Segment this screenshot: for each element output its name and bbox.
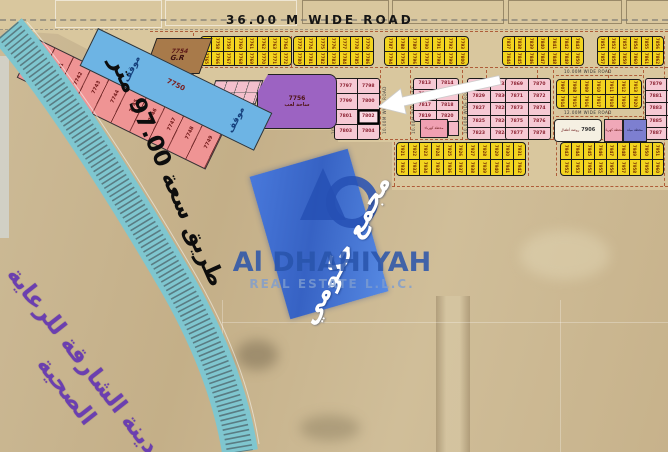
plot-cell: 7919 bbox=[618, 95, 629, 109]
plot-number: 7771 bbox=[272, 53, 277, 64]
plot-cell: 7954 bbox=[584, 160, 594, 176]
plot-cell: 7783 bbox=[328, 52, 338, 66]
plot-cell: 7803 bbox=[335, 125, 357, 139]
plot-cell: 7849 bbox=[561, 52, 572, 66]
pink-plot-row: 78857886 bbox=[646, 116, 668, 127]
sand-light-patch bbox=[520, 230, 610, 280]
plot-number: 7816 bbox=[441, 92, 454, 97]
plot-number: 7874 bbox=[533, 106, 546, 111]
plot-cell: 7924 bbox=[432, 143, 443, 159]
plot-cell: 7825 bbox=[468, 116, 490, 127]
road-name-horizontal: 12.00M WIDE ROAD bbox=[564, 110, 612, 115]
plot-cell: 7802 bbox=[358, 110, 380, 124]
plot-cell: 7861 bbox=[642, 52, 652, 66]
plot-cell: 7845 bbox=[515, 52, 526, 66]
plot-cell: 7769 bbox=[247, 52, 257, 66]
boundary-dash bbox=[556, 142, 557, 176]
yellow-plot-row: 7837783878397840784178427843 bbox=[503, 37, 583, 51]
plot-number: 7784 bbox=[342, 53, 347, 64]
plot-cell: 7797 bbox=[335, 79, 357, 93]
plot-number: 7749 bbox=[203, 135, 214, 150]
plot-number: 7793 bbox=[460, 38, 465, 49]
plot-number: 7760 bbox=[238, 38, 243, 49]
plot-number: 7957 bbox=[621, 162, 626, 173]
plot-number: 7948 bbox=[621, 145, 626, 156]
plot-cell: 7879 bbox=[646, 79, 666, 90]
plot-cell: 7946 bbox=[595, 143, 605, 159]
pink-plot-row: 78737874 bbox=[506, 103, 550, 114]
boundary-dash bbox=[380, 70, 381, 140]
plot-cell: 7875 bbox=[506, 116, 528, 127]
plot-number: 7825 bbox=[472, 119, 485, 124]
plot-number: 7777 bbox=[342, 38, 347, 49]
plot-cell: 7959 bbox=[641, 160, 651, 176]
utility-plot-water: محطة مياه bbox=[623, 119, 647, 142]
yellow-plot-row: 7787778877897790779177927793 bbox=[385, 37, 468, 51]
yellow-plot-strip: 7943794479457946794779487949795079517952… bbox=[560, 142, 664, 176]
plot-number: 7764 bbox=[283, 38, 288, 49]
plot-number: 7921 bbox=[400, 145, 405, 156]
plot-number: 7873 bbox=[510, 106, 523, 111]
plot-number: 7870 bbox=[533, 82, 546, 87]
plot-number: 7854 bbox=[634, 38, 639, 49]
plot-number: 7887 bbox=[649, 131, 662, 136]
plot-cell: 7944 bbox=[572, 143, 582, 159]
plot-number: 7792 bbox=[448, 38, 453, 49]
plot-cell: 7846 bbox=[526, 52, 537, 66]
plot-cell: 7768 bbox=[235, 52, 245, 66]
plot-cell: 7759 bbox=[224, 37, 234, 51]
plot-cell: 7795 bbox=[397, 52, 408, 66]
plot-cell: 7775 bbox=[317, 37, 327, 51]
plot-number: 7766 bbox=[215, 53, 220, 64]
plot-cell: 7794 bbox=[385, 52, 396, 66]
plot-cell: 7801 bbox=[335, 110, 357, 124]
plot-cell: 7948 bbox=[618, 143, 628, 159]
plot-number: 7759 bbox=[226, 38, 231, 49]
plot-number: 7815 bbox=[418, 92, 431, 97]
road-name-horizontal: 10.00M WIDE ROAD bbox=[564, 69, 612, 74]
yellow-plot-strip: 7787778877897790779177927793779477957796… bbox=[384, 36, 469, 66]
yellow-plot-row: 785178527853785478557856 bbox=[598, 37, 663, 51]
plot-cell: 7949 bbox=[630, 143, 640, 159]
plot-cell: 7761 bbox=[247, 37, 257, 51]
plot-cell: 7933 bbox=[409, 160, 420, 176]
plot-cell: 7915 bbox=[569, 95, 580, 109]
plot-number: 7837 bbox=[506, 38, 511, 49]
plot-cell: 7840 bbox=[538, 37, 549, 51]
plot-cell: 7935 bbox=[432, 160, 443, 176]
plot-number: 7938 bbox=[470, 162, 475, 173]
plot-number: 7818 bbox=[441, 103, 454, 108]
plot-number: 7817 bbox=[418, 103, 431, 108]
plot-cell: 7940 bbox=[491, 160, 502, 176]
pink-plot-row: 78797880 bbox=[646, 79, 668, 90]
pink-plot-block: 7869787078717872787378747875787678777878 bbox=[505, 78, 551, 140]
plot-cell: 7927 bbox=[467, 143, 478, 159]
plot-number: 7947 bbox=[609, 145, 614, 156]
plot-cell: 7829 bbox=[468, 91, 490, 102]
plot-cell: 7885 bbox=[646, 116, 666, 127]
plot-cell: 7960 bbox=[653, 160, 663, 176]
plot-number: 7942 bbox=[517, 162, 522, 173]
plot-cell: 7772 bbox=[281, 52, 291, 66]
plot-number: 7776 bbox=[331, 38, 336, 49]
plot-number: 7779 bbox=[365, 38, 370, 49]
plot-number: 7767 bbox=[226, 53, 231, 64]
plot-cell: 7841 bbox=[549, 37, 560, 51]
plot-number: 7952 bbox=[564, 162, 569, 173]
plot-label: ساحة لعب bbox=[284, 102, 309, 108]
plot-number: 7862 bbox=[656, 53, 661, 64]
plot-number: 7768 bbox=[238, 53, 243, 64]
yellow-plot-row: 795279537954795579567957795879597960 bbox=[561, 160, 663, 176]
plot-number: 7823 bbox=[472, 131, 485, 136]
yellow-plot-strip: 7851785278537854785578567857785878597860… bbox=[597, 36, 664, 66]
plot-number: 7741 bbox=[54, 62, 65, 77]
plot-number: 7881 bbox=[649, 94, 662, 99]
plot-number: 7929 bbox=[494, 145, 499, 156]
plot-cell: 7782 bbox=[317, 52, 327, 66]
plot-number: 7919 bbox=[621, 96, 626, 107]
plot-cell: 7784 bbox=[340, 52, 350, 66]
plot-cell: 7956 bbox=[607, 160, 617, 176]
plot-cell: 7914 bbox=[557, 95, 568, 109]
top-road-label: 36.00 M WIDE ROAD bbox=[226, 13, 414, 27]
sand-dark-patch bbox=[236, 340, 278, 370]
plot-cell: 7792 bbox=[445, 37, 456, 51]
plot-cell: 7916 bbox=[581, 95, 592, 109]
plot-7906-nursery: روضة أطفال 7906 bbox=[554, 119, 602, 142]
plot-number: 7798 bbox=[436, 53, 441, 64]
pink-plot-row: 78837884 bbox=[646, 103, 668, 114]
plot-number: 7941 bbox=[505, 162, 510, 173]
plot-number: 7861 bbox=[645, 53, 650, 64]
plot-cell: 7850 bbox=[572, 52, 583, 66]
plot-number: 7859 bbox=[623, 53, 628, 64]
plot-cell: 7843 bbox=[572, 37, 583, 51]
plot-cell: 7931 bbox=[514, 143, 525, 159]
plot-cell: 7922 bbox=[409, 143, 420, 159]
utility-plot-mini bbox=[448, 121, 459, 136]
plot-number: 7913 bbox=[633, 81, 638, 92]
plot-number: 7855 bbox=[645, 38, 650, 49]
plot-number: 7774 bbox=[308, 38, 313, 49]
boundary-dash bbox=[556, 75, 642, 76]
plot-number: 7908 bbox=[572, 81, 577, 92]
plot-number: 7914 bbox=[560, 96, 565, 107]
plot-cell: 7947 bbox=[607, 143, 617, 159]
pink-plot-row: 78177818 bbox=[414, 101, 458, 111]
plot-number: 7758 bbox=[215, 38, 220, 49]
plot-cell: 7778 bbox=[351, 37, 361, 51]
plot-number: 7920 bbox=[633, 96, 638, 107]
plot-cell: 7874 bbox=[529, 103, 551, 114]
plot-number: 7943 bbox=[564, 145, 569, 156]
plot-cell: 7799 bbox=[445, 52, 456, 66]
yellow-plot-strip: 7757775877597760776177627763776477657766… bbox=[200, 36, 292, 66]
plot-number: 7785 bbox=[354, 53, 359, 64]
plot-number: 7780 bbox=[297, 53, 302, 64]
plot-cell: 7780 bbox=[294, 52, 304, 66]
plot-cell: 7781 bbox=[305, 52, 315, 66]
plot-cell: 7857 bbox=[598, 52, 608, 66]
plot-cell: 7804 bbox=[358, 125, 380, 139]
parking-number: 7750 bbox=[165, 77, 186, 93]
plot-cell: 7823 bbox=[468, 128, 490, 139]
plot-number: 7945 bbox=[587, 145, 592, 156]
plot-cell: 7870 bbox=[529, 79, 551, 90]
plot-number: 7829 bbox=[472, 94, 485, 99]
boundary-dash bbox=[394, 142, 395, 186]
plot-cell: 7918 bbox=[606, 95, 617, 109]
plot-number: 7937 bbox=[458, 162, 463, 173]
plot-number: 7839 bbox=[529, 38, 534, 49]
plot-cell: 7815 bbox=[414, 90, 436, 100]
plot-cell: 7856 bbox=[653, 37, 663, 51]
plot-number: 7740 bbox=[35, 53, 46, 68]
pink-plot-row: 78037804 bbox=[335, 125, 379, 139]
yellow-plot-row: 7844784578467847784878497850 bbox=[503, 52, 583, 66]
plot-cell: 7945 bbox=[584, 143, 594, 159]
plot-number: 7910 bbox=[596, 81, 601, 92]
dirt-track bbox=[436, 296, 470, 452]
plot-number: 7772 bbox=[283, 53, 288, 64]
plot-cell: 7887 bbox=[646, 128, 666, 139]
plot-cell: 7936 bbox=[444, 160, 455, 176]
yellow-plot-row: 7914791579167917791879197920 bbox=[557, 95, 641, 109]
plot-cell: 7860 bbox=[631, 52, 641, 66]
plot-number: 7852 bbox=[612, 38, 617, 49]
plot-cell: 7855 bbox=[642, 37, 652, 51]
plot-number: 7877 bbox=[510, 131, 523, 136]
plot-cell: 7873 bbox=[506, 103, 528, 114]
plot-number: 7820 bbox=[441, 114, 454, 119]
plot-cell: 7764 bbox=[281, 37, 291, 51]
plot-cell: 7862 bbox=[653, 52, 663, 66]
plot-number: 7956 bbox=[609, 162, 614, 173]
plot-number: 7949 bbox=[632, 145, 637, 156]
plot-number: 7798 bbox=[362, 84, 375, 89]
plot-number: 7789 bbox=[412, 38, 417, 49]
plot-cell: 7771 bbox=[269, 52, 279, 66]
plot-cell: 7788 bbox=[397, 37, 408, 51]
plot-number: 7924 bbox=[435, 145, 440, 156]
plot-cell: 7818 bbox=[437, 101, 459, 111]
plot-number: 7831 bbox=[472, 82, 485, 87]
yellow-plot-strip: 7907790879097910791179127913791479157916… bbox=[556, 79, 642, 109]
plot-number: 7875 bbox=[510, 119, 523, 124]
plot-cell: 7923 bbox=[420, 143, 431, 159]
parcel-line bbox=[560, 300, 561, 452]
plot-cell: 7837 bbox=[503, 37, 514, 51]
plot-number: 7909 bbox=[584, 81, 589, 92]
plot-cell: 7770 bbox=[258, 52, 268, 66]
plot-cell: 7930 bbox=[503, 143, 514, 159]
plot-number: 7858 bbox=[612, 53, 617, 64]
plot-number: 7959 bbox=[644, 162, 649, 173]
plot-cell: 7760 bbox=[235, 37, 245, 51]
plot-number: 7926 bbox=[458, 145, 463, 156]
plot-cell: 7932 bbox=[397, 160, 408, 176]
plot-cell: 7798 bbox=[358, 79, 380, 93]
plot-cell: 7854 bbox=[631, 37, 641, 51]
plot-number: 7840 bbox=[540, 38, 545, 49]
plot-number: 7775 bbox=[320, 38, 325, 49]
plot-number: 7756 bbox=[289, 95, 306, 102]
plot-number: 7869 bbox=[510, 82, 523, 87]
plot-cell: 7851 bbox=[598, 37, 608, 51]
yellow-plot-row: 785778587859786078617862 bbox=[598, 52, 663, 66]
plot-number: 7797 bbox=[424, 53, 429, 64]
plot-number: 7879 bbox=[649, 82, 662, 87]
yellow-plot-row: 77657766776777687769777077717772 bbox=[201, 52, 291, 66]
utility-plot-small: محطة كهرباء bbox=[420, 119, 448, 138]
plot-cell: 7758 bbox=[212, 37, 222, 51]
plot-number: 7787 bbox=[388, 38, 393, 49]
plot-number: 7838 bbox=[517, 38, 522, 49]
pink-plot-row: 78017802 bbox=[335, 110, 379, 124]
plot-number: 7773 bbox=[297, 38, 302, 49]
plot-number: 7799 bbox=[339, 99, 352, 104]
plot-number: 7885 bbox=[649, 119, 662, 124]
pink-plot-row: 78717872 bbox=[506, 91, 550, 102]
plot-cell: 7787 bbox=[385, 37, 396, 51]
plot-number: 7788 bbox=[400, 38, 405, 49]
plot-number: 7860 bbox=[634, 53, 639, 64]
plot-number: 7845 bbox=[517, 53, 522, 64]
yellow-plot-row: 7773777477757776777777787779 bbox=[294, 37, 373, 51]
plot-number: 7916 bbox=[584, 96, 589, 107]
plot-cell: 7793 bbox=[457, 37, 468, 51]
plot-cell: 7912 bbox=[618, 80, 629, 94]
yellow-plot-strip: 7773777477757776777777787779778077817782… bbox=[293, 36, 374, 66]
plot-cell: 7938 bbox=[467, 160, 478, 176]
plot-number: 7927 bbox=[470, 145, 475, 156]
plot-cell: 7951 bbox=[653, 143, 663, 159]
plot-cell: 7858 bbox=[609, 52, 619, 66]
yellow-plot-row: 794379447945794679477948794979507951 bbox=[561, 143, 663, 159]
plot-cell: 7817 bbox=[414, 101, 436, 111]
watermark-subtitle: REAL ESTATE L.L.C. bbox=[244, 277, 420, 291]
pink-plot-block: 7879788078817882788378847885788678877888 bbox=[645, 78, 668, 140]
plot-cell: 7908 bbox=[569, 80, 580, 94]
plot-cell: 7934 bbox=[420, 160, 431, 176]
boundary-dash bbox=[528, 142, 529, 176]
plot-number: 7950 bbox=[644, 145, 649, 156]
plot-number: 7853 bbox=[623, 38, 628, 49]
plot-number: 7939 bbox=[482, 162, 487, 173]
plot-cell: 7799 bbox=[335, 94, 357, 108]
plot-cell: 7847 bbox=[538, 52, 549, 66]
plot-number: 7848 bbox=[552, 53, 557, 64]
plot-cell: 7813 bbox=[414, 79, 436, 89]
plot-number: 7781 bbox=[308, 53, 313, 64]
plot-cell: 7844 bbox=[503, 52, 514, 66]
plot-cell: 7797 bbox=[421, 52, 432, 66]
plot-number: 7883 bbox=[649, 106, 662, 111]
plot-number: 7928 bbox=[482, 145, 487, 156]
plot-cell: 7881 bbox=[646, 91, 666, 102]
plot-cell: 7852 bbox=[609, 37, 619, 51]
plot-cell: 7907 bbox=[557, 80, 568, 94]
plot-number: 7742 bbox=[72, 71, 83, 86]
plot-number: 7786 bbox=[365, 53, 370, 64]
plot-number: 7936 bbox=[447, 162, 452, 173]
plot-7756-playground: 7756 ساحة لعب bbox=[257, 74, 337, 129]
plot-number: 7871 bbox=[510, 94, 523, 99]
plot-number: 7791 bbox=[436, 38, 441, 49]
plot-label: G.R bbox=[168, 55, 185, 63]
plot-number: 7770 bbox=[261, 53, 266, 64]
plot-number: 7911 bbox=[609, 81, 614, 92]
pink-plot-row: 78697870 bbox=[506, 79, 550, 90]
plot-cell: 7859 bbox=[620, 52, 630, 66]
plot-number: 7915 bbox=[572, 96, 577, 107]
plot-cell: 7777 bbox=[340, 37, 350, 51]
plot-number: 7813 bbox=[418, 81, 431, 86]
pink-plot-row: 78137814 bbox=[414, 79, 458, 89]
plot-number: 7762 bbox=[261, 38, 266, 49]
plot-number: 7912 bbox=[621, 81, 626, 92]
pink-plot-row: 77997800 bbox=[335, 94, 379, 108]
plot-cell: 7827 bbox=[468, 103, 490, 114]
plot-cell: 7876 bbox=[529, 116, 551, 127]
plot-cell: 7869 bbox=[506, 79, 528, 90]
pink-plot-row: 78757876 bbox=[506, 116, 550, 127]
plot-number: 7748 bbox=[184, 126, 195, 141]
plot-number: 7935 bbox=[435, 162, 440, 173]
plot-number: 7847 bbox=[540, 53, 545, 64]
plot-number: 7954 bbox=[587, 162, 592, 173]
plot-cell: 7786 bbox=[363, 52, 373, 66]
plot-cell: 7878 bbox=[529, 128, 551, 139]
plot-number: 7802 bbox=[362, 114, 375, 119]
plot-number: 7917 bbox=[596, 96, 601, 107]
plot-cell: 7955 bbox=[595, 160, 605, 176]
plot-cell: 7800 bbox=[457, 52, 468, 66]
plot-number: 7783 bbox=[331, 53, 336, 64]
plot-number: 7878 bbox=[533, 131, 546, 136]
map-screenshot: 36.00 M WIDE ROAD 10.00M WIDE ROAD10.00M… bbox=[0, 0, 668, 452]
plot-cell: 7814 bbox=[437, 79, 459, 89]
plot-number: 7803 bbox=[339, 129, 352, 134]
plot-number: 7960 bbox=[655, 162, 660, 173]
pink-plot-row: 78157816 bbox=[414, 90, 458, 100]
plot-number: 7800 bbox=[460, 53, 465, 64]
pink-plot-row: 78777878 bbox=[506, 128, 550, 139]
plot-number: 7918 bbox=[609, 96, 614, 107]
plot-cell: 7842 bbox=[561, 37, 572, 51]
plot-number: 7841 bbox=[552, 38, 557, 49]
plot-cell: 7776 bbox=[328, 37, 338, 51]
plot-number: 7844 bbox=[506, 53, 511, 64]
plot-cell: 7928 bbox=[479, 143, 490, 159]
plot-cell: 7800 bbox=[358, 94, 380, 108]
plot-number: 7872 bbox=[533, 94, 546, 99]
yellow-plot-row: 77577758775977607761776277637764 bbox=[201, 37, 291, 51]
road-name-vertical: 10.00M WIDE ROAD bbox=[382, 86, 387, 134]
plot-cell: 7917 bbox=[593, 95, 604, 109]
boundary-dash bbox=[392, 186, 668, 187]
plot-number: 7955 bbox=[598, 162, 603, 173]
plot-cell: 7816 bbox=[437, 90, 459, 100]
pink-plot-row: 78877888 bbox=[646, 128, 668, 139]
plot-cell: 7877 bbox=[506, 128, 528, 139]
plot-cell: 7798 bbox=[433, 52, 444, 66]
plot-cell: 7774 bbox=[305, 37, 315, 51]
yellow-plot-row: 7907790879097910791179127913 bbox=[557, 80, 641, 94]
